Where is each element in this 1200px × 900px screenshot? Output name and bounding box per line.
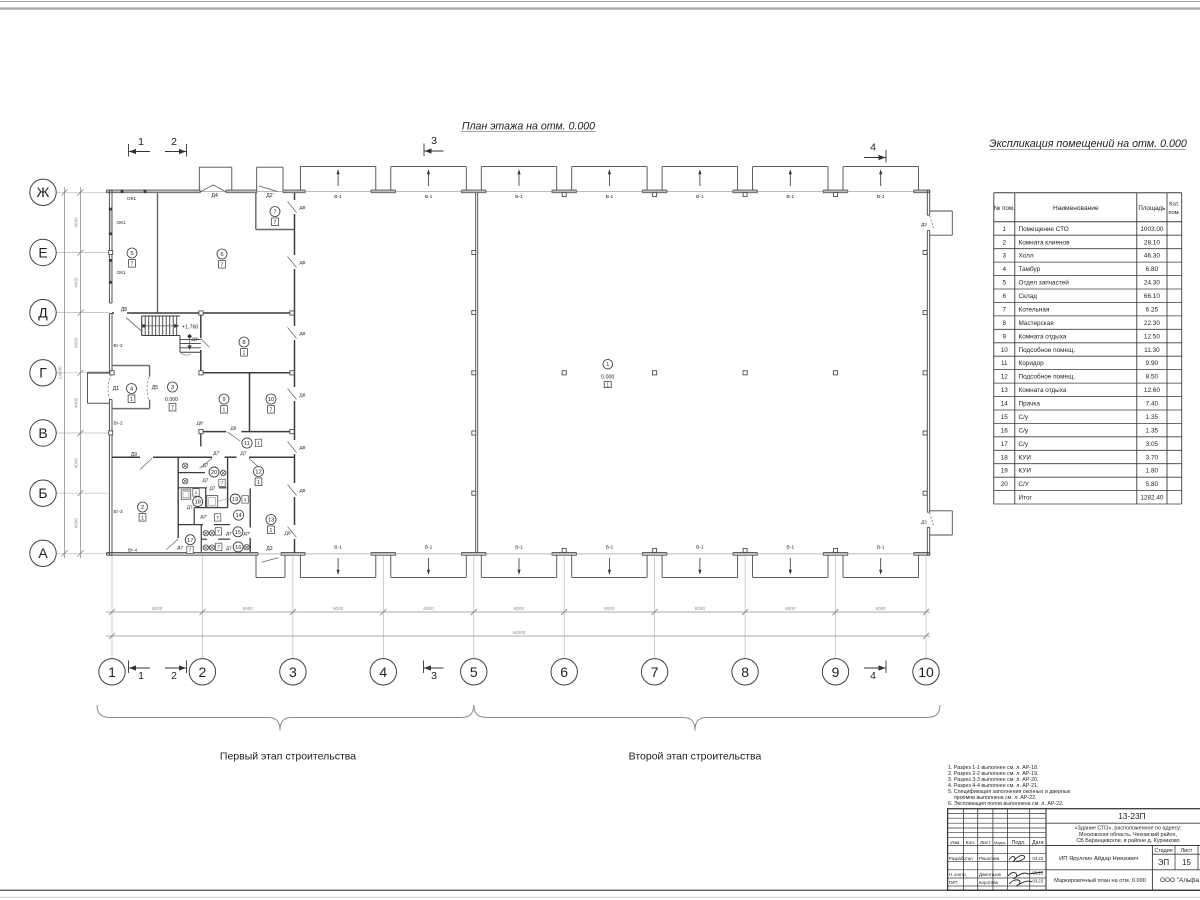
svg-text:0.000: 0.000 xyxy=(601,374,614,380)
svg-text:Д8: Д8 xyxy=(121,307,127,313)
svg-text:Кол.: Кол. xyxy=(966,840,976,846)
svg-text:Д3: Д3 xyxy=(921,222,927,227)
svg-text:10: 10 xyxy=(1001,347,1009,354)
svg-text:7: 7 xyxy=(131,262,134,268)
svg-text:Итог: Итог xyxy=(1019,495,1033,502)
svg-text:20: 20 xyxy=(1001,481,1009,488)
svg-text:1003.00: 1003.00 xyxy=(1140,226,1164,233)
svg-text:Экспликация помещений на отм.: Экспликация помещений на отм. 0.000 xyxy=(989,138,1187,150)
svg-text:8: 8 xyxy=(1003,320,1007,327)
svg-text:1: 1 xyxy=(244,497,247,503)
svg-text:6000: 6000 xyxy=(243,606,254,611)
svg-text:Наименование: Наименование xyxy=(1053,205,1099,212)
svg-text:СБ Баранцевское, в районе д. К: СБ Баранцевское, в районе д. Курниково xyxy=(1076,837,1179,844)
svg-text:Д8: Д8 xyxy=(300,393,306,399)
svg-text:Д: Д xyxy=(38,304,48,320)
svg-text:Коротава: Коротава xyxy=(979,880,998,885)
svg-text:Д9: Д9 xyxy=(131,452,137,458)
svg-text:6000: 6000 xyxy=(423,606,434,611)
svg-text:4000: 4000 xyxy=(73,337,78,348)
svg-text:Стадия: Стадия xyxy=(1154,848,1172,854)
svg-text:Д7': Д7' xyxy=(244,531,251,536)
svg-text:7: 7 xyxy=(171,405,174,411)
svg-text:Д1: Д1 xyxy=(113,386,120,392)
svg-text:17: 17 xyxy=(1001,441,1009,448)
svg-text:66.10: 66.10 xyxy=(1144,293,1160,300)
svg-text:9.90: 9.90 xyxy=(1146,360,1159,367)
svg-text:4: 4 xyxy=(379,664,387,680)
svg-text:Д8: Д8 xyxy=(300,445,306,451)
svg-text:3: 3 xyxy=(1003,253,1007,260)
svg-text:5: 5 xyxy=(1003,280,1007,287)
svg-text:С/у: С/у xyxy=(1019,414,1029,421)
svg-text:План этажа на отм. 0.000: План этажа на отм. 0.000 xyxy=(462,120,595,132)
svg-text:1.35: 1.35 xyxy=(1146,427,1159,434)
svg-text:20: 20 xyxy=(211,470,217,476)
svg-text:Комната отдыха: Комната отдыха xyxy=(1019,387,1067,394)
svg-text:ЭП: ЭП xyxy=(1158,858,1169,867)
svg-text:Д5: Д5 xyxy=(152,385,159,391)
svg-text:4: 4 xyxy=(870,142,876,154)
svg-text:Подсобное помещ.: Подсобное помещ. xyxy=(1019,373,1076,381)
svg-text:В-1: В-1 xyxy=(696,194,704,200)
svg-text:1: 1 xyxy=(606,362,609,368)
svg-text:3: 3 xyxy=(431,135,437,147)
svg-text:12: 12 xyxy=(255,470,262,476)
svg-text:5: 5 xyxy=(470,664,478,680)
svg-text:6000: 6000 xyxy=(876,606,887,611)
svg-text:Мастерская: Мастерская xyxy=(1019,320,1055,327)
svg-text:С/у: С/у xyxy=(1019,441,1029,448)
svg-text:Модок.: Модок. xyxy=(994,841,1006,845)
svg-text:11: 11 xyxy=(1001,360,1008,367)
svg-text:7: 7 xyxy=(651,664,659,680)
svg-text:Лист: Лист xyxy=(980,840,991,846)
svg-text:6.25: 6.25 xyxy=(1146,307,1159,314)
svg-text:Д8': Д8' xyxy=(197,420,204,426)
svg-text:28.10: 28.10 xyxy=(1144,239,1160,246)
svg-text:14: 14 xyxy=(1001,401,1009,408)
svg-text:Отдел запчастей: Отдел запчастей xyxy=(1019,279,1070,287)
svg-text:3: 3 xyxy=(431,670,437,682)
svg-text:2: 2 xyxy=(171,136,177,148)
svg-text:6000: 6000 xyxy=(604,606,615,611)
svg-text:1: 1 xyxy=(257,441,260,447)
svg-text:Д3: Д3 xyxy=(921,520,927,525)
svg-text:7.40: 7.40 xyxy=(1146,401,1159,408)
svg-text:С/У: С/У xyxy=(1019,481,1030,488)
svg-text:№ пом.: № пом. xyxy=(994,205,1015,212)
svg-text:6.80: 6.80 xyxy=(1146,266,1159,273)
svg-text:В-1: В-1 xyxy=(425,194,433,200)
svg-text:Д7: Д7 xyxy=(187,504,193,509)
svg-text:10: 10 xyxy=(268,397,275,403)
svg-text:С/у: С/у xyxy=(1019,427,1029,434)
svg-text:15: 15 xyxy=(235,530,241,536)
svg-text:Е: Е xyxy=(38,244,47,260)
svg-text:1: 1 xyxy=(138,136,144,148)
svg-text:В-1: В-1 xyxy=(696,545,704,551)
svg-text:Прачка: Прачка xyxy=(1019,401,1041,408)
svg-text:В-1: В-1 xyxy=(425,545,433,551)
svg-text:Д8: Д8 xyxy=(231,426,237,432)
svg-text:24.30: 24.30 xyxy=(1144,280,1160,287)
svg-text:1: 1 xyxy=(141,516,144,522)
svg-text:Д7: Д7 xyxy=(177,545,183,550)
svg-text:16: 16 xyxy=(235,545,241,551)
svg-text:Кат.: Кат. xyxy=(1169,202,1179,208)
svg-text:Коридор: Коридор xyxy=(1019,360,1045,367)
svg-text:1: 1 xyxy=(195,490,198,496)
svg-text:2: 2 xyxy=(171,670,177,682)
svg-text:18: 18 xyxy=(1001,454,1009,461)
svg-text:6. Экспликация полов выполнена: 6. Экспликация полов выполнена см. л. АР… xyxy=(948,801,1064,807)
svg-text:ИП Яруллин Айдар Ниязович: ИП Яруллин Айдар Ниязович xyxy=(1059,855,1138,862)
svg-text:3: 3 xyxy=(289,664,297,680)
svg-text:Дата: Дата xyxy=(1032,840,1043,846)
svg-text:Д7': Д7' xyxy=(213,451,220,457)
svg-text:6000: 6000 xyxy=(152,606,163,611)
svg-text:19: 19 xyxy=(1001,468,1009,475)
svg-text:Склад: Склад xyxy=(1019,293,1038,300)
svg-text:7: 7 xyxy=(217,545,220,551)
svg-text:Помещение СТО: Помещение СТО xyxy=(1019,226,1069,233)
svg-text:03.23: 03.23 xyxy=(1033,856,1044,861)
svg-text:46.30: 46.30 xyxy=(1144,253,1160,260)
svg-text:9: 9 xyxy=(1003,333,1007,340)
svg-text:7: 7 xyxy=(273,210,276,216)
svg-text:Д7: Д7 xyxy=(226,531,232,536)
svg-text:7: 7 xyxy=(274,220,277,226)
svg-text:10: 10 xyxy=(918,664,934,680)
svg-text:12.50: 12.50 xyxy=(1144,333,1160,340)
svg-text:Н. контр.: Н. контр. xyxy=(949,872,967,877)
svg-text:Изм.: Изм. xyxy=(950,840,960,846)
svg-text:4000: 4000 xyxy=(73,397,78,408)
svg-text:14: 14 xyxy=(235,513,241,519)
svg-text:А: А xyxy=(38,545,48,561)
svg-text:6000: 6000 xyxy=(695,606,706,611)
svg-text:2: 2 xyxy=(199,664,207,680)
svg-text:Комната отдыха: Комната отдыха xyxy=(1019,333,1067,340)
svg-text:В-1: В-1 xyxy=(606,545,614,551)
svg-text:ОК1: ОК1 xyxy=(117,220,127,226)
svg-text:Вт-2: Вт-2 xyxy=(114,343,124,348)
svg-text:13-23П: 13-23П xyxy=(1118,811,1145,821)
svg-text:4000: 4000 xyxy=(73,458,78,469)
svg-text:3.70: 3.70 xyxy=(1146,454,1159,461)
svg-text:1282.40: 1282.40 xyxy=(1140,495,1164,502)
svg-text:Вт-3: Вт-3 xyxy=(114,509,124,514)
svg-text:Д8: Д8 xyxy=(300,205,306,211)
svg-text:1.80: 1.80 xyxy=(1146,468,1159,475)
svg-text:6000: 6000 xyxy=(514,606,525,611)
svg-text:7: 7 xyxy=(216,515,219,521)
svg-text:Разработал: Разработал xyxy=(949,856,973,861)
svg-text:24000: 24000 xyxy=(57,366,62,379)
svg-text:4: 4 xyxy=(870,670,876,682)
svg-text:7: 7 xyxy=(221,481,224,487)
svg-text:6: 6 xyxy=(560,664,568,680)
svg-text:В-1: В-1 xyxy=(515,545,523,551)
svg-text:Вт-4: Вт-4 xyxy=(128,548,138,553)
svg-text:9: 9 xyxy=(832,664,840,680)
svg-text:Д8: Д8 xyxy=(300,331,306,337)
svg-text:8: 8 xyxy=(741,664,749,680)
svg-text:Д7: Д7 xyxy=(241,451,247,457)
svg-text:1: 1 xyxy=(270,528,273,534)
svg-text:Д8': Д8' xyxy=(285,531,292,537)
svg-text:1: 1 xyxy=(257,480,260,486)
svg-text:3.05: 3.05 xyxy=(1146,441,1159,448)
svg-text:Д8: Д8 xyxy=(300,260,306,266)
svg-text:В-1: В-1 xyxy=(786,194,794,200)
svg-text:ОК1: ОК1 xyxy=(117,270,127,276)
svg-text:Подл.: Подл. xyxy=(1012,840,1026,846)
svg-text:4000: 4000 xyxy=(73,518,78,529)
svg-text:Джентазов: Джентазов xyxy=(979,872,1002,877)
svg-text:КУИ: КУИ xyxy=(1019,468,1032,475)
svg-text:Д7': Д7' xyxy=(201,514,208,519)
svg-text:Маркировочный план на отм. 0.0: Маркировочный план на отм. 0.000 xyxy=(1054,877,1146,884)
svg-text:1: 1 xyxy=(1003,226,1007,233)
svg-text:Второй этап строительства: Второй этап строительства xyxy=(629,751,762,763)
svg-text:11.30: 11.30 xyxy=(1144,347,1160,354)
svg-text:В-1: В-1 xyxy=(334,545,342,551)
svg-text:1: 1 xyxy=(606,382,609,388)
svg-text:В-1: В-1 xyxy=(877,194,885,200)
svg-text:В-1: В-1 xyxy=(786,545,794,551)
svg-text:4000: 4000 xyxy=(73,277,78,288)
svg-text:17: 17 xyxy=(187,538,193,544)
svg-text:15: 15 xyxy=(1182,858,1191,867)
svg-text:ООО "Альфа: ООО "Альфа xyxy=(1160,877,1200,884)
svg-text:Первый этап строительства: Первый этап строительства xyxy=(220,751,356,763)
svg-text:9: 9 xyxy=(222,397,225,403)
svg-text:12.60: 12.60 xyxy=(1144,387,1160,394)
svg-text:Д7: Д7 xyxy=(226,546,232,551)
svg-text:2: 2 xyxy=(141,505,144,511)
svg-text:11: 11 xyxy=(244,441,250,447)
svg-text:0.000: 0.000 xyxy=(165,397,178,403)
svg-text:Вт-2: Вт-2 xyxy=(114,421,124,426)
svg-text:16: 16 xyxy=(1001,427,1009,434)
svg-text:«Здание СТО», расположенное по: «Здание СТО», расположенное по адресу: xyxy=(1075,826,1182,832)
svg-text:22.30: 22.30 xyxy=(1144,320,1160,327)
svg-text:Д7: Д7 xyxy=(203,478,209,483)
svg-text:7: 7 xyxy=(217,529,220,535)
svg-text:Лист: Лист xyxy=(1181,848,1193,854)
svg-text:7: 7 xyxy=(221,263,224,269)
svg-text:ОК1: ОК1 xyxy=(127,196,137,202)
svg-text:Комната клиенов: Комната клиенов xyxy=(1019,239,1071,246)
svg-text:1: 1 xyxy=(108,664,116,680)
svg-text:7: 7 xyxy=(1003,307,1007,314)
svg-text:Д4: Д4 xyxy=(211,193,218,199)
svg-text:ГИП: ГИП xyxy=(949,880,958,885)
svg-text:8.50: 8.50 xyxy=(1146,374,1159,381)
svg-text:Ж: Ж xyxy=(37,184,50,200)
svg-text:5.80: 5.80 xyxy=(1146,481,1159,488)
svg-text:03.23: 03.23 xyxy=(1033,879,1044,884)
svg-text:1: 1 xyxy=(138,670,144,682)
svg-text:1: 1 xyxy=(243,351,246,357)
svg-text:Московская область, Чеховский: Московская область, Чеховский район, xyxy=(1079,831,1177,838)
svg-text:4000: 4000 xyxy=(73,217,78,228)
svg-text:2: 2 xyxy=(1003,239,1007,246)
svg-text:Решетова: Решетова xyxy=(979,856,1000,861)
svg-text:6000: 6000 xyxy=(333,606,344,611)
svg-text:В-1: В-1 xyxy=(877,545,885,551)
svg-text:6000: 6000 xyxy=(785,606,796,611)
svg-text:В-1: В-1 xyxy=(606,194,614,200)
svg-text:Тамбур: Тамбур xyxy=(1019,265,1041,273)
svg-text:7: 7 xyxy=(189,548,192,554)
svg-text:4: 4 xyxy=(1003,266,1007,273)
svg-text:13: 13 xyxy=(268,518,275,524)
svg-text:Д2': Д2' xyxy=(266,193,273,199)
svg-text:7: 7 xyxy=(270,408,273,414)
svg-text:Г: Г xyxy=(39,365,47,381)
svg-text:Б: Б xyxy=(38,485,47,501)
svg-text:19: 19 xyxy=(232,497,238,503)
svg-text:Площадь: Площадь xyxy=(1138,205,1165,212)
svg-text:18: 18 xyxy=(195,500,201,506)
svg-text:13: 13 xyxy=(1001,387,1009,394)
svg-text:КУИ: КУИ xyxy=(1019,454,1032,461)
svg-text:54000: 54000 xyxy=(513,630,526,635)
svg-text:Котельная: Котельная xyxy=(1019,307,1050,314)
svg-text:+1.760: +1.760 xyxy=(182,324,199,330)
svg-text:пом.: пом. xyxy=(1168,210,1180,216)
svg-text:Холл: Холл xyxy=(1019,253,1034,260)
svg-text:Д7: Д7 xyxy=(203,463,209,468)
svg-text:Подсобное помещ.: Подсобное помещ. xyxy=(1019,346,1076,354)
svg-text:1: 1 xyxy=(223,408,226,414)
svg-text:Д7: Д7 xyxy=(210,485,216,490)
svg-text:6: 6 xyxy=(1003,293,1007,300)
svg-text:В: В xyxy=(38,425,47,441)
svg-text:12: 12 xyxy=(1001,374,1009,381)
svg-text:15: 15 xyxy=(1001,414,1009,421)
svg-text:В-1: В-1 xyxy=(334,194,342,200)
svg-text:1: 1 xyxy=(130,397,133,403)
svg-text:1.35: 1.35 xyxy=(1146,414,1159,421)
svg-text:Д8: Д8 xyxy=(300,488,306,494)
svg-text:Д2: Д2 xyxy=(266,546,273,552)
svg-text:В-1: В-1 xyxy=(515,194,523,200)
